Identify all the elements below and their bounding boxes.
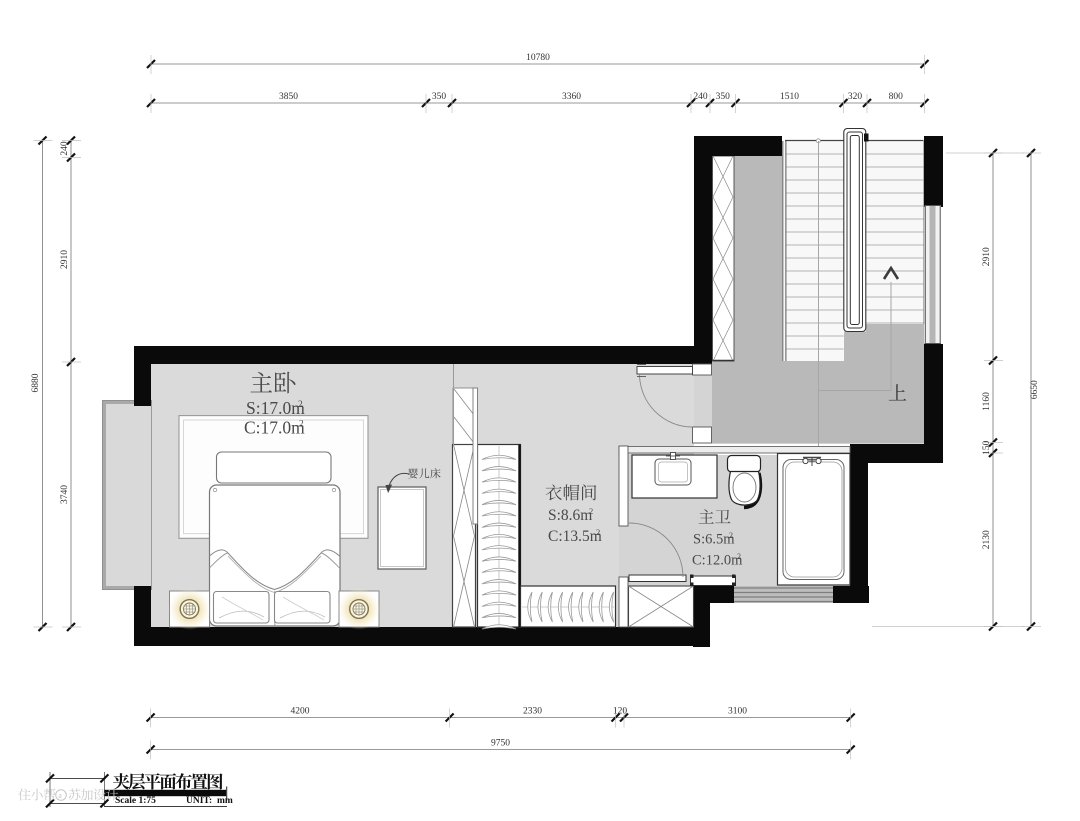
svg-text:3100: 3100 <box>728 707 747 717</box>
svg-text:a: a <box>58 791 62 800</box>
svg-text:2: 2 <box>737 552 741 561</box>
svg-text:2910: 2910 <box>982 247 992 266</box>
svg-text:Scale 1:75: Scale 1:75 <box>115 796 156 806</box>
svg-text:2: 2 <box>596 527 600 537</box>
svg-text:3740: 3740 <box>60 485 70 504</box>
svg-text:350: 350 <box>432 92 447 102</box>
svg-text:6650: 6650 <box>1030 380 1040 399</box>
svg-text:120: 120 <box>613 707 628 717</box>
svg-text:2: 2 <box>299 420 304 430</box>
svg-text:2130: 2130 <box>982 530 992 549</box>
svg-text:3850: 3850 <box>279 92 298 102</box>
svg-text:S:17.0m: S:17.0m <box>246 398 305 418</box>
svg-text:1160: 1160 <box>982 392 992 411</box>
svg-text:2: 2 <box>298 400 303 410</box>
svg-text:10780: 10780 <box>526 53 550 63</box>
svg-text:3360: 3360 <box>562 92 581 102</box>
svg-text:C:17.0m: C:17.0m <box>244 418 305 438</box>
svg-text:240: 240 <box>60 141 70 156</box>
svg-text:2910: 2910 <box>60 250 70 269</box>
svg-text:2: 2 <box>729 531 733 540</box>
svg-text:240: 240 <box>693 92 708 102</box>
svg-text:150: 150 <box>982 440 992 455</box>
svg-text:350: 350 <box>716 92 731 102</box>
svg-text:320: 320 <box>848 92 863 102</box>
svg-text:9750: 9750 <box>491 739 510 749</box>
svg-text:2: 2 <box>589 506 593 516</box>
svg-text:1510: 1510 <box>780 92 799 102</box>
svg-text:UNIT: mm: UNIT: mm <box>186 796 233 806</box>
svg-text:C:12.0m: C:12.0m <box>692 553 743 569</box>
svg-text:2330: 2330 <box>523 707 542 717</box>
svg-text:C:13.5m: C:13.5m <box>548 528 602 545</box>
svg-text:800: 800 <box>889 92 904 102</box>
svg-text:6880: 6880 <box>31 373 41 392</box>
svg-text:4200: 4200 <box>291 707 310 717</box>
svg-text:S:8.6m: S:8.6m <box>548 507 592 524</box>
